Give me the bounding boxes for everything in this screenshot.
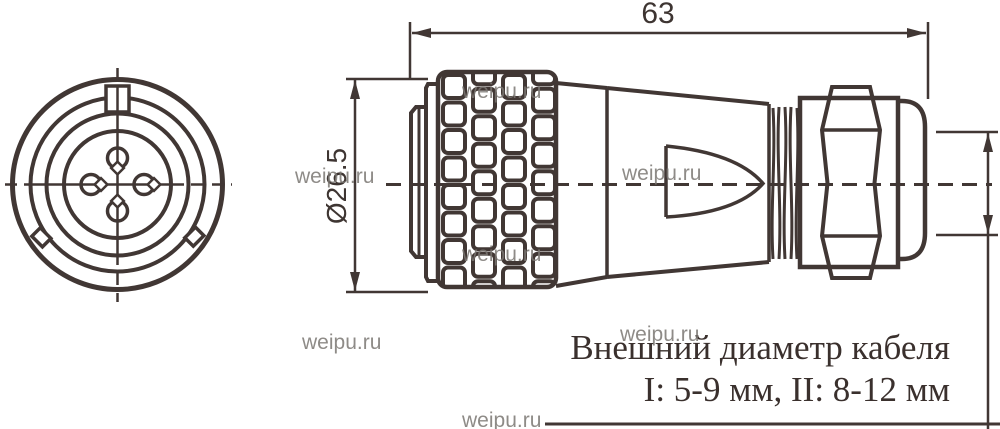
watermark-text: weipu.ru	[301, 331, 381, 354]
watermark-text: weipu.ru	[461, 409, 541, 429]
cable-note-line2: I: 5-9 мм, II: 8-12 мм	[644, 370, 950, 409]
taper-bottom	[607, 262, 769, 277]
watermark-text: weipu.ru	[619, 323, 699, 346]
body-cylinder-top	[556, 83, 607, 88]
pin-right-keyway	[148, 178, 161, 191]
bayonet-nub-left	[32, 228, 51, 247]
pin-bottom-keyway	[111, 195, 124, 208]
arrowhead-down	[983, 215, 993, 234]
watermark-text: weipu.ru	[461, 243, 541, 266]
watermark-text: weipu.ru	[621, 162, 701, 185]
arrowhead-right	[907, 28, 926, 38]
arrowhead-up	[350, 80, 360, 99]
gland-nut-body	[800, 98, 898, 267]
arrowhead-up	[983, 133, 993, 152]
gland-nut-hex-facet	[822, 87, 880, 278]
pin-left-keyway	[95, 178, 108, 191]
end-cap	[898, 101, 925, 259]
bayonet-nub-right	[185, 227, 204, 246]
watermark-text: weipu.ru	[294, 165, 374, 188]
taper-top	[607, 88, 769, 104]
body-cylinder-bottom	[556, 277, 607, 286]
technical-drawing-page: 63 Ø26.5 Внешний диаметр кабеля I: 5-9 м…	[0, 0, 1000, 429]
arrowhead-left	[412, 28, 431, 38]
arrowhead-down	[350, 272, 360, 291]
watermark-text: weipu.ru	[461, 80, 541, 103]
connector-drawing-svg: 63 Ø26.5 Внешний диаметр кабеля I: 5-9 м…	[0, 0, 1000, 429]
length-dimension-label: 63	[641, 0, 674, 30]
front-view	[5, 68, 232, 302]
pin-top-keyway	[111, 162, 124, 175]
